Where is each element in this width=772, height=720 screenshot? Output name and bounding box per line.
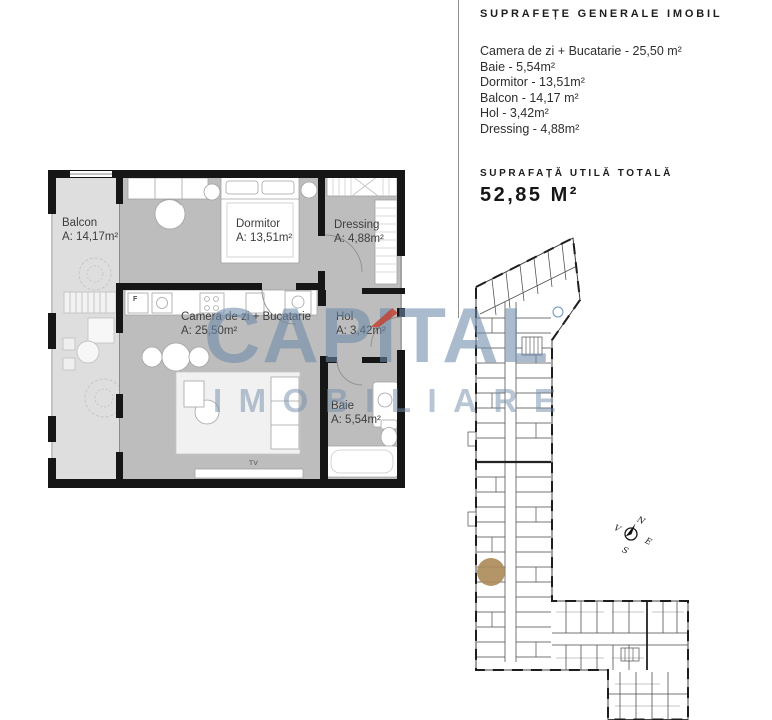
room-label-balcon: Balcon A: 14,17m² — [62, 217, 118, 244]
room-area-item: Baie - 5,54m² — [480, 60, 772, 76]
room-label-dormitor: Dormitor A: 13,51m² — [236, 218, 292, 245]
selected-unit-marker — [477, 558, 505, 586]
room-label-hol: Hol A: 3,42m² — [336, 311, 386, 338]
room-area-item: Dormitor - 13,51m² — [480, 75, 772, 91]
compass-rose: N E S V — [606, 507, 660, 561]
fridge-label: F — [133, 296, 137, 303]
total-area-value: 52,85 M² — [480, 184, 772, 207]
room-label-dressing: Dressing A: 4,88m² — [334, 219, 384, 246]
vertical-divider — [458, 0, 459, 318]
total-area-label: SUPRAFAȚĂ UTILĂ TOTALĂ — [480, 168, 772, 179]
room-area-item: Dressing - 4,88m² — [480, 122, 772, 138]
room-area-item: Camera de zi + Bucatarie - 25,50 m² — [480, 44, 772, 60]
building-site-plan — [468, 238, 688, 720]
room-area-list: Camera de zi + Bucatarie - 25,50 m² Baie… — [480, 44, 772, 138]
listing-floorplan-page: SUPRAFEȚE GENERALE IMOBIL Camera de zi +… — [0, 0, 772, 720]
area-summary-panel: SUPRAFEȚE GENERALE IMOBIL Camera de zi +… — [480, 8, 772, 207]
room-label-camera-de-zi: Camera de zi + Bucatarie A: 25,50m² — [181, 311, 311, 338]
tv-label: TV — [249, 460, 258, 467]
compass-needle-graphic — [606, 507, 660, 561]
room-area-item: Balcon - 14,17 m² — [480, 91, 772, 107]
room-area-item: Hol - 3,42m² — [480, 106, 772, 122]
room-label-baie: Baie A: 5,54m² — [331, 400, 381, 427]
panel-title: SUPRAFEȚE GENERALE IMOBIL — [480, 8, 772, 20]
